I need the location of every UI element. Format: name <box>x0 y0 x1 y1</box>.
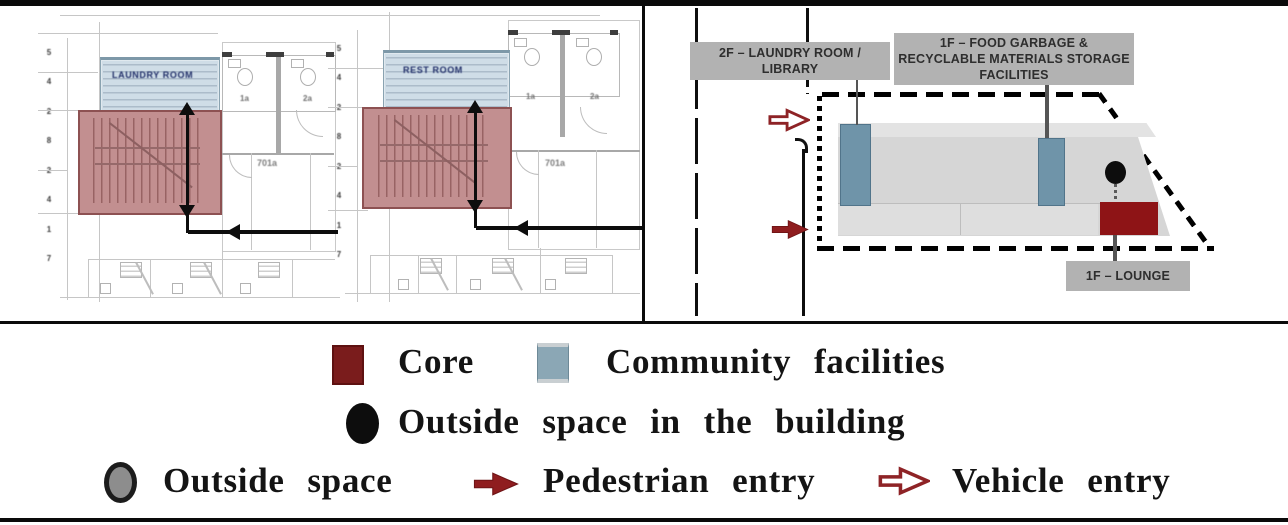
leader-line <box>1113 235 1117 262</box>
legend-vehicle-label: Vehicle entry <box>952 461 1170 501</box>
vehicle-entry-arrow-icon <box>768 105 810 135</box>
facility-label: REST ROOM <box>403 65 463 75</box>
unit-label: 2a <box>590 92 599 101</box>
legend-pedestrian-label: Pedestrian entry <box>543 461 815 501</box>
arrowhead-up <box>467 100 483 113</box>
core-lounge-block <box>1100 202 1158 235</box>
toilet-fixture <box>586 48 602 66</box>
unit-label: 2a <box>303 94 312 103</box>
dimension-ticks: 54282417 <box>42 48 56 263</box>
room-number: 701a <box>545 158 565 168</box>
label-lounge: 1F – LOUNGE <box>1066 261 1190 291</box>
pedestrian-entry-icon <box>468 470 524 498</box>
outside-space-dot <box>1105 161 1126 184</box>
pedestrian-entry-arrow-icon <box>770 218 810 241</box>
label-storage-facilities: 1F – FOOD GARBAGE & RECYCLABLE MATERIALS… <box>894 33 1134 85</box>
site-boundary-left <box>817 96 822 248</box>
community-facilities-swatch <box>537 343 569 383</box>
vehicle-entry-icon <box>878 464 930 498</box>
arrowhead-up <box>179 102 195 115</box>
toilet-fixture <box>524 48 540 66</box>
community-facility-block <box>840 124 871 206</box>
stair-hatch <box>93 118 201 203</box>
community-facility-overlay <box>383 50 510 111</box>
community-facility-overlay <box>100 57 220 114</box>
site-boundary-bottom <box>817 246 1214 251</box>
community-facility-block <box>1038 138 1065 206</box>
room-number: 701a <box>257 158 277 168</box>
dimension-ticks: 54282417 <box>332 44 346 259</box>
middle-divider <box>0 321 1288 324</box>
unit-label: 1a <box>240 94 249 103</box>
label-laundry-library: 2F – LAUNDRY ROOM / LIBRARY <box>690 42 890 80</box>
site-boundary-top <box>822 92 1104 97</box>
arrowhead-down <box>467 200 483 213</box>
legend-outside-space-label: Outside space <box>163 461 393 501</box>
arrowhead-left <box>514 220 528 236</box>
outside-space-dot-icon <box>104 462 137 503</box>
core-swatch <box>332 345 364 385</box>
arrowhead-left <box>226 224 240 240</box>
bottom-border <box>0 518 1288 522</box>
figure-frame: 54282417 1a 2a 701a <box>0 0 1288 525</box>
leader-line <box>1045 85 1049 138</box>
legend-community-label: Community facilities <box>606 342 945 382</box>
legend-core-label: Core <box>398 342 474 382</box>
arrowhead-down <box>179 205 195 218</box>
outside-space-in-building-dot <box>346 403 379 444</box>
panel-divider <box>642 6 645 321</box>
toilet-fixture <box>237 68 253 86</box>
legend-outside-in-building-label: Outside space in the building <box>398 402 905 442</box>
toilet-fixture <box>300 68 316 86</box>
facility-label: LAUNDRY ROOM <box>112 70 193 80</box>
leader-line <box>856 80 858 125</box>
unit-label: 1a <box>526 92 535 101</box>
